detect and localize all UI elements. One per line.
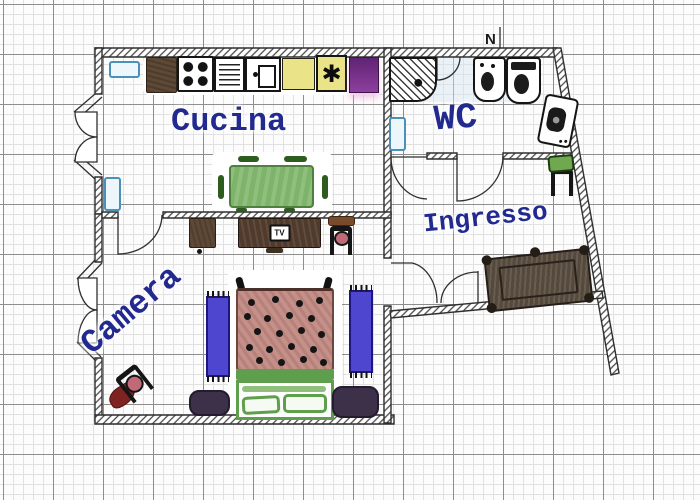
french-doors-group: [75, 112, 97, 343]
wall-wc-bottom-mid: [427, 153, 457, 159]
cucina-chair-dash: [284, 156, 307, 162]
cucina-sink-basin: [245, 57, 281, 92]
camera-tv-cabinet-foot: [266, 248, 283, 253]
door-ingresso-left: [391, 157, 427, 199]
cucina-table: [229, 165, 314, 208]
cucina-sink-drainer: [214, 57, 245, 92]
bed-foot-stripe: [242, 386, 326, 392]
door-entrance: [441, 271, 478, 303]
bed-pillow: [283, 394, 327, 413]
door-ingresso-wc: [457, 156, 503, 201]
french-door-kitchen-top-leaf: [75, 112, 97, 137]
camera-cabinet-knob: [197, 249, 202, 254]
wall-camera-left-upper: [95, 214, 102, 262]
wall-kitchen-left-upper: [95, 48, 102, 94]
cucina-stove: [177, 56, 214, 92]
french-door-kitchen-bottom-leaf: [75, 137, 97, 162]
wall-divider-stub: [102, 212, 118, 218]
bed-green-band: [236, 369, 334, 380]
wall-camera-right-upper: [384, 214, 391, 258]
floorplan-canvas: ✱ TV: [0, 0, 700, 500]
camera-stool: [328, 216, 356, 254]
hob-star-icon: ✱: [321, 60, 341, 88]
north-marker: N: [485, 31, 496, 48]
camera-rug-blue-right: [349, 290, 373, 373]
cucina-hob: ✱: [316, 55, 347, 92]
wall-camera-right-lower: [384, 306, 391, 423]
camera-cabinet: [189, 218, 216, 248]
wc-bidet: [473, 57, 506, 102]
bed-pillow: [242, 395, 281, 415]
wall-camera-left-lower: [95, 358, 102, 422]
cucina-fridge: [146, 57, 177, 93]
cucina-tap-icon: [253, 72, 258, 77]
camera-rug-blue-left: [206, 296, 230, 377]
bed-foot-section: [236, 380, 334, 420]
cucina-chair-dash: [218, 175, 224, 199]
radiator-wc: [389, 117, 406, 151]
camera-chair: [108, 362, 158, 414]
cucina-counter: [282, 58, 315, 90]
radiator-cucina-top: [109, 61, 140, 78]
ingresso-bench: [483, 248, 593, 313]
camera-bed: [236, 275, 334, 420]
cucina-basin: [258, 65, 276, 88]
bed-blanket: [236, 288, 334, 371]
ingresso-stool-seat: [547, 154, 574, 173]
ingresso-stool: [545, 155, 579, 197]
cucina-chair-dash: [322, 175, 328, 199]
cucina-chair-dash: [236, 208, 247, 212]
cucina-chair-dash: [238, 156, 259, 162]
camera-stool-top: [328, 216, 355, 226]
ingresso-stool-frame: [551, 169, 573, 196]
door-cucina-camera: [118, 215, 162, 254]
tv-icon: TV: [269, 225, 290, 242]
wc-shower: [389, 57, 437, 102]
cucina-cabinet-purple: [349, 57, 379, 93]
french-door-camera-top-leaf: [78, 278, 97, 310]
label-wc: WC: [433, 100, 479, 139]
camera-stool-seat: [334, 231, 350, 246]
wall-kitchen-left-lower: [95, 177, 102, 214]
wc-toilet: [506, 57, 541, 104]
label-cucina: Cucina: [171, 106, 286, 138]
radiator-cucina-left: [104, 177, 121, 211]
door-wc-shower: [437, 57, 460, 80]
camera-rug-purple-right: [332, 386, 379, 418]
door-camera-ingresso: [391, 263, 437, 303]
camera-rug-purple-left: [189, 390, 230, 416]
washer-door-icon: [545, 106, 567, 133]
camera-tv-cabinet: TV: [238, 218, 321, 248]
cucina-chair-dash: [284, 208, 295, 212]
